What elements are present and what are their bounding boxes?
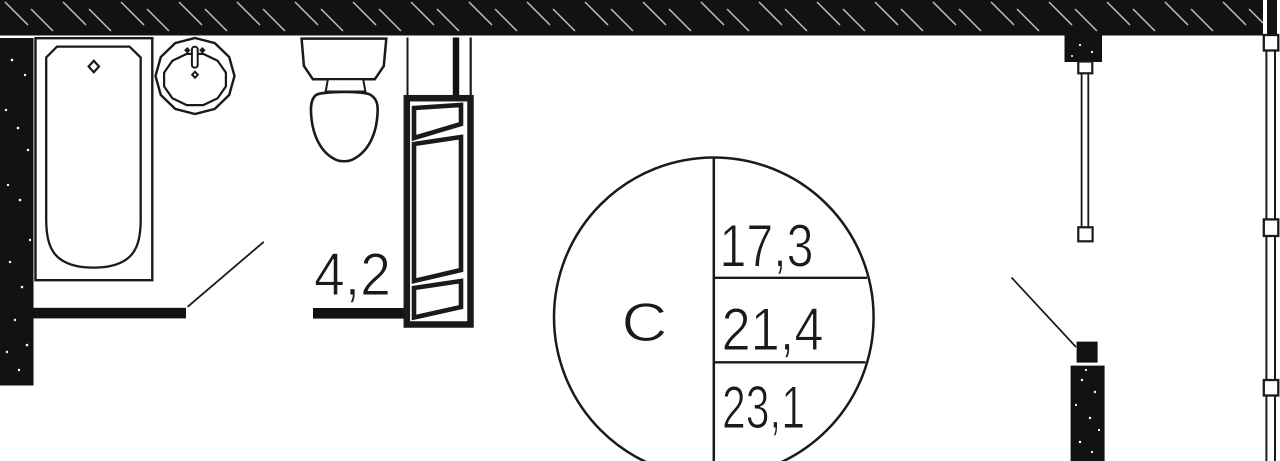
svg-text:23,1: 23,1 xyxy=(722,374,805,441)
svg-text:C: C xyxy=(622,291,668,353)
svg-text:21,4: 21,4 xyxy=(722,296,824,363)
svg-text:17,3: 17,3 xyxy=(720,213,814,280)
svg-text:4,2: 4,2 xyxy=(314,241,391,308)
